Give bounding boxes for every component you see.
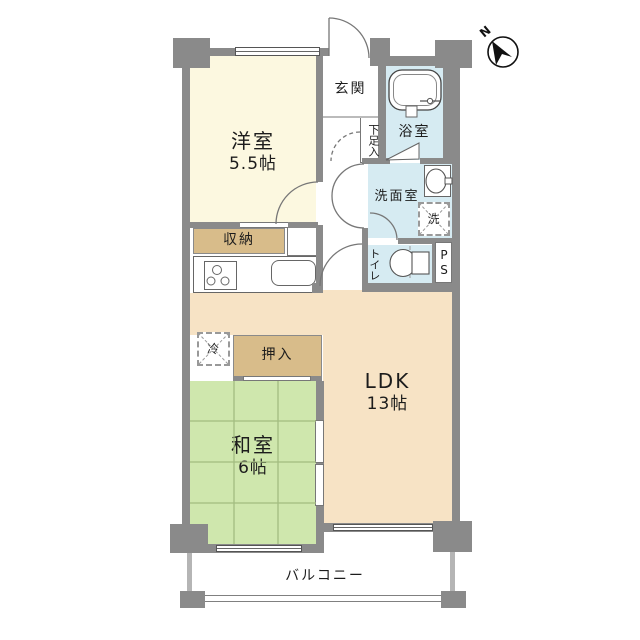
western-room-name: 洋室 bbox=[231, 129, 275, 154]
wall-left bbox=[182, 56, 190, 546]
japanese-room-name: 和室 bbox=[231, 433, 275, 458]
window-ldk-balcony bbox=[333, 524, 433, 531]
japanese-room-size: 6帖 bbox=[238, 458, 268, 479]
balcony-post-right bbox=[441, 591, 466, 608]
balcony-label: バルコニー bbox=[235, 568, 415, 586]
washbasin-counter bbox=[424, 165, 451, 197]
compass-circle bbox=[488, 37, 518, 67]
wall-bath-right bbox=[443, 66, 452, 160]
toilet-label: トイレ bbox=[366, 245, 382, 283]
ldk-name: LDK bbox=[365, 369, 411, 394]
futon-closet-label: 押入 bbox=[233, 335, 322, 377]
shoe-cabinet-label: 下足入 bbox=[362, 119, 384, 161]
japanese-room-label: 和室 6帖 bbox=[190, 428, 316, 484]
bathroom-label: 浴室 bbox=[386, 120, 443, 146]
wall-washroom-top-b bbox=[420, 158, 452, 164]
ldk-door-swing bbox=[320, 244, 362, 286]
compass-north-label: N bbox=[477, 23, 494, 40]
washroom-door-swing bbox=[332, 164, 364, 228]
entrance-label: 玄関 bbox=[323, 72, 378, 108]
washer-space-label: 洗 bbox=[418, 202, 450, 236]
pipe-space-label: PS bbox=[435, 243, 452, 283]
entrance-step-line bbox=[323, 116, 378, 118]
ldk-japanese-sliding-door-b bbox=[315, 464, 324, 506]
entrance-door-swing bbox=[329, 18, 369, 58]
hall-cabinet-box bbox=[287, 224, 318, 256]
wall-toilet-top bbox=[398, 238, 432, 244]
wall-toilet-bottom bbox=[362, 283, 460, 292]
balcony-railing bbox=[203, 595, 443, 602]
window-japanese-balcony bbox=[216, 545, 302, 552]
window-western-top bbox=[235, 47, 320, 56]
balcony-rail-right bbox=[450, 552, 455, 592]
compass-needle-icon bbox=[492, 41, 512, 65]
balcony-post-left bbox=[180, 591, 205, 608]
western-room-size: 5.5帖 bbox=[229, 154, 277, 175]
hall-storage-label: 収納 bbox=[193, 228, 285, 254]
ldk-label: LDK 13帖 bbox=[323, 366, 452, 418]
wall-western-right bbox=[316, 56, 323, 182]
shoe-cabinet-door-swing bbox=[331, 132, 360, 161]
stove bbox=[204, 261, 237, 290]
ldk-size: 13帖 bbox=[367, 394, 409, 415]
balcony-rail-left bbox=[187, 553, 192, 592]
wall-top-a bbox=[203, 48, 237, 56]
kitchen-sink bbox=[271, 260, 316, 286]
wall-hall-ldk-stub bbox=[312, 283, 323, 293]
ldk-japanese-sliding-door-a bbox=[315, 420, 324, 463]
floor-plan: 洋室 5.5帖 LDK 13帖 和室 6帖 玄関 浴室 洗面室 トイレ 下足入 … bbox=[0, 0, 640, 640]
western-room-label: 洋室 5.5帖 bbox=[190, 122, 316, 182]
compass: N bbox=[477, 23, 518, 67]
wall-western-bottom-b bbox=[288, 222, 318, 228]
wall-ps-top bbox=[432, 238, 452, 242]
refrigerator-space-label: 冷 bbox=[197, 332, 230, 366]
